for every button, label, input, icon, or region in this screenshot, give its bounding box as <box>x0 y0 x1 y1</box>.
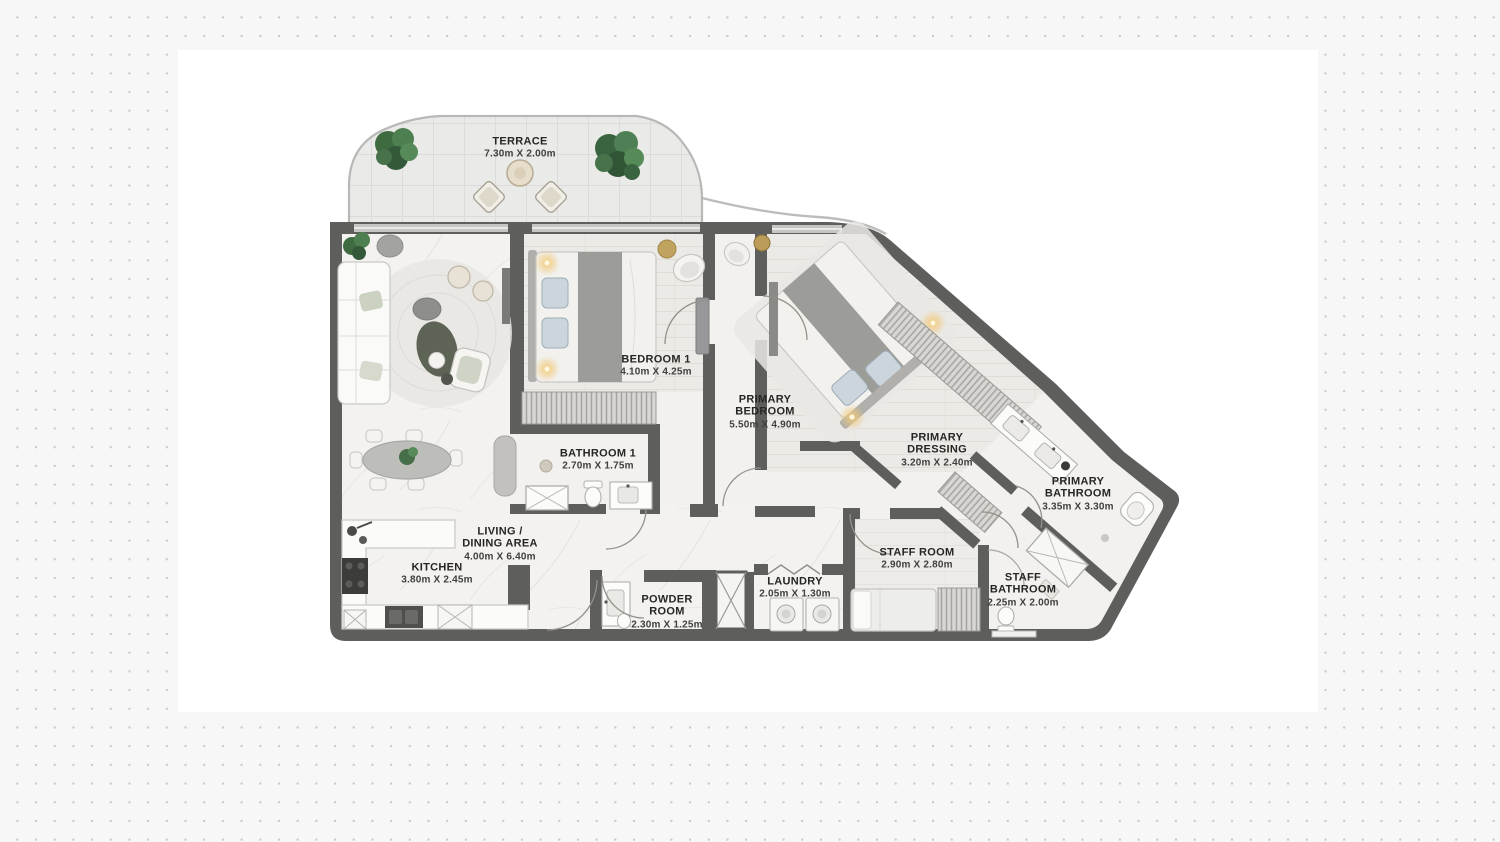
side-table <box>441 373 453 385</box>
dishwasher <box>438 605 472 629</box>
powder-room-fixtures <box>602 582 631 629</box>
floor-plan: TERRACE 7.30m X 2.00m BEDROOM 1 4.10m X … <box>325 100 1185 660</box>
vanity <box>610 482 652 509</box>
staff-room-furniture <box>851 588 980 631</box>
terrace-area <box>349 116 886 234</box>
kitchen-counter <box>342 605 528 629</box>
stove <box>342 558 368 594</box>
pouf <box>448 266 470 288</box>
coffee-table <box>413 298 441 320</box>
washing-machine <box>806 598 839 631</box>
side-table <box>377 235 403 257</box>
gold-pot <box>754 235 770 251</box>
washing-machine <box>770 598 803 631</box>
console <box>494 436 516 496</box>
bed <box>851 589 936 631</box>
toilet-icon <box>584 481 602 507</box>
stool <box>540 460 552 472</box>
toilet-icon <box>998 607 1014 632</box>
tv-unit <box>769 282 778 356</box>
services-shaft <box>716 572 746 629</box>
tv-unit <box>502 268 510 324</box>
cabinet <box>344 610 366 629</box>
kitchen-sink <box>385 606 423 628</box>
sofa <box>338 262 390 404</box>
pouf <box>473 281 493 301</box>
terrace-table <box>507 160 533 186</box>
shower <box>526 486 568 510</box>
wardrobe <box>938 588 980 631</box>
gold-table <box>658 240 676 258</box>
shelf <box>992 631 1036 637</box>
door-leaf <box>696 298 709 354</box>
floor-plan-svg <box>325 100 1185 660</box>
wardrobe <box>522 392 656 424</box>
drain <box>1101 534 1109 542</box>
